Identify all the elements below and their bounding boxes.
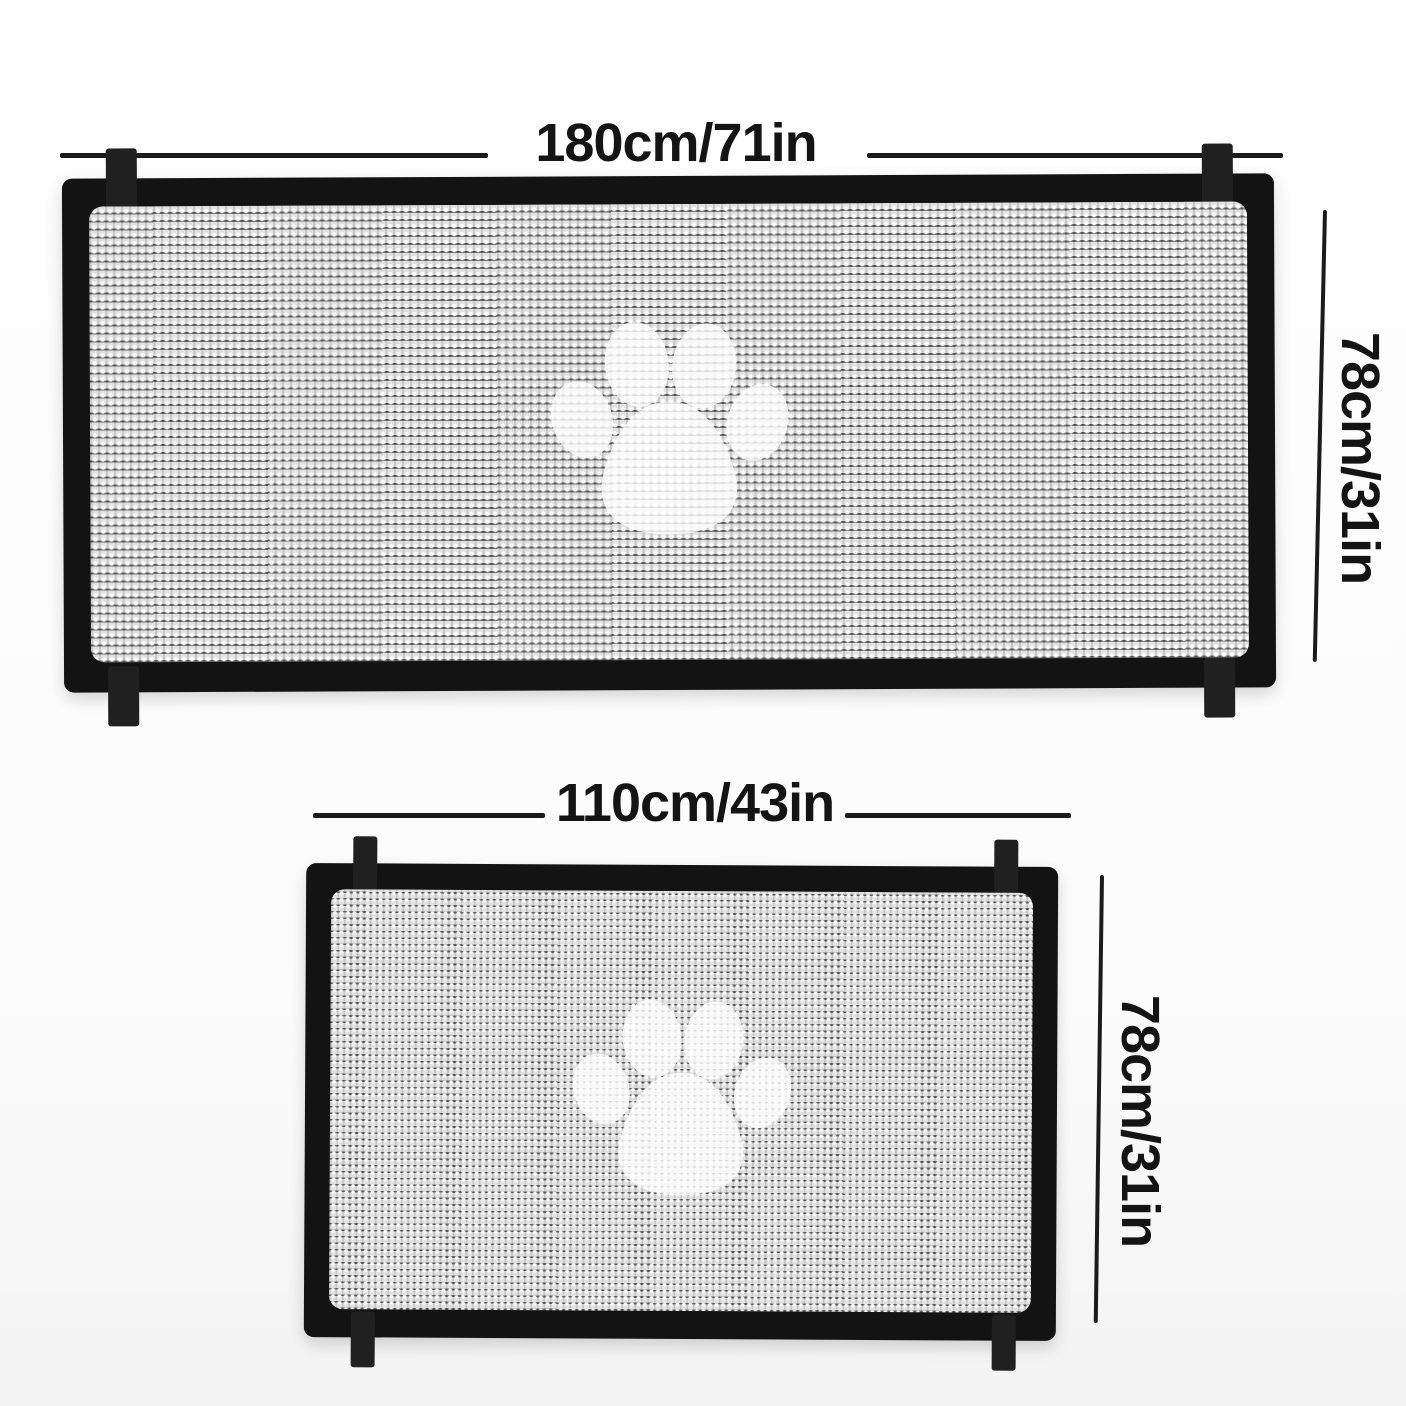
mount-tab-top-left <box>353 836 377 892</box>
large-gate-height-dimension-line <box>1313 210 1327 662</box>
mount-tab-top-left <box>106 148 137 208</box>
small-gate-mesh <box>329 889 1033 1313</box>
small-gate-height-dimension-line <box>1094 875 1104 1323</box>
small-gate-width-label: 110cm/43in <box>495 772 895 834</box>
small-gate-panel <box>304 863 1058 1341</box>
mount-tab-top-right <box>1202 144 1233 204</box>
large-gate-mesh <box>89 201 1249 662</box>
mount-tab-bottom-left <box>351 1311 375 1367</box>
product-dimension-diagram: 180cm/71in 78cm/31in 110cm/43in <box>0 0 1406 1406</box>
mount-tab-bottom-right <box>1204 658 1235 718</box>
large-gate-width-label: 180cm/71in <box>476 112 876 174</box>
paw-print-icon <box>566 998 795 1204</box>
large-gate-height-label: 78cm/31in <box>1329 332 1391 584</box>
large-gate-panel <box>62 173 1276 692</box>
paw-print-icon <box>545 320 794 544</box>
small-gate-width-dimension-line-right <box>845 813 1071 818</box>
mount-tab-bottom-left <box>108 666 139 726</box>
mount-tab-bottom-right <box>992 1315 1016 1371</box>
mount-tab-top-right <box>994 840 1018 896</box>
small-gate-height-label: 78cm/31in <box>1109 995 1171 1247</box>
